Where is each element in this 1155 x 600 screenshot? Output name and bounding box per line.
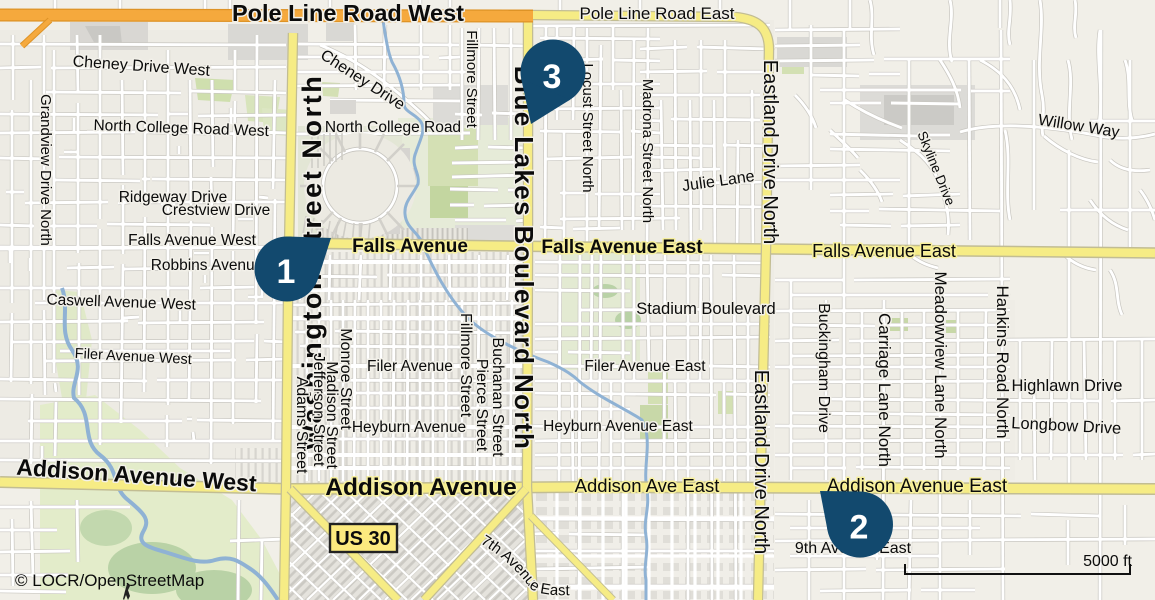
svg-text:3: 3 [543, 58, 562, 96]
svg-text:Monroe Street: Monroe Street [337, 328, 354, 430]
svg-text:Buchanan Street: Buchanan Street [489, 337, 506, 457]
svg-text:Eastland Drive North: Eastland Drive North [759, 60, 781, 245]
svg-text:Pole Line Road East: Pole Line Road East [580, 4, 735, 23]
svg-text:Fillmore Street: Fillmore Street [457, 313, 474, 418]
svg-text:Falls Avenue: Falls Avenue [352, 236, 468, 257]
svg-text:Eastland Drive North: Eastland Drive North [750, 370, 772, 555]
svg-text:Grandview Drive North: Grandview Drive North [37, 94, 54, 246]
svg-text:Crestview Drive: Crestview Drive [162, 202, 271, 219]
svg-text:Adams Street: Adams Street [293, 377, 310, 474]
svg-text:Meadowview Lane North: Meadowview Lane North [931, 271, 950, 458]
svg-text:Heyburn Avenue: Heyburn Avenue [352, 419, 466, 436]
svg-text:Pierce Street: Pierce Street [473, 359, 490, 452]
svg-text:Robbins Avenue: Robbins Avenue [151, 257, 264, 274]
svg-text:Blue Lakes Boulevard North: Blue Lakes Boulevard North [509, 66, 539, 451]
svg-text:Heyburn Avenue East: Heyburn Avenue East [543, 418, 693, 435]
svg-text:2: 2 [850, 509, 869, 547]
svg-text:5000 ft: 5000 ft [1083, 553, 1132, 570]
svg-text:Falls Avenue East: Falls Avenue East [812, 241, 956, 261]
svg-text:© LOCR/OpenStreetMap: © LOCR/OpenStreetMap [15, 571, 204, 590]
svg-text:North College Road: North College Road [325, 119, 461, 136]
svg-text:Carriage Lane North: Carriage Lane North [875, 313, 894, 467]
svg-text:Madrona Street North: Madrona Street North [639, 79, 656, 223]
svg-text:Filer Avenue East: Filer Avenue East [584, 358, 706, 375]
svg-text:Filer Avenue: Filer Avenue [367, 358, 453, 375]
svg-text:Hankins Road North: Hankins Road North [993, 285, 1012, 438]
svg-text:Falls Avenue West: Falls Avenue West [128, 232, 256, 249]
svg-text:Stadium Boulevard: Stadium Boulevard [636, 300, 775, 318]
svg-text:US 30: US 30 [335, 528, 391, 550]
svg-text:Highlawn Drive: Highlawn Drive [1012, 377, 1123, 395]
svg-text:Buckingham Drive: Buckingham Drive [815, 303, 832, 433]
svg-text:Falls Avenue East: Falls Avenue East [541, 237, 703, 258]
svg-text:Addison Avenue: Addison Avenue [325, 474, 516, 501]
svg-text:1: 1 [277, 253, 296, 291]
svg-text:Fillmore Street: Fillmore Street [463, 30, 480, 128]
svg-text:Addison Ave East: Addison Ave East [575, 475, 720, 496]
svg-text:Pole Line Road West: Pole Line Road West [232, 0, 464, 26]
